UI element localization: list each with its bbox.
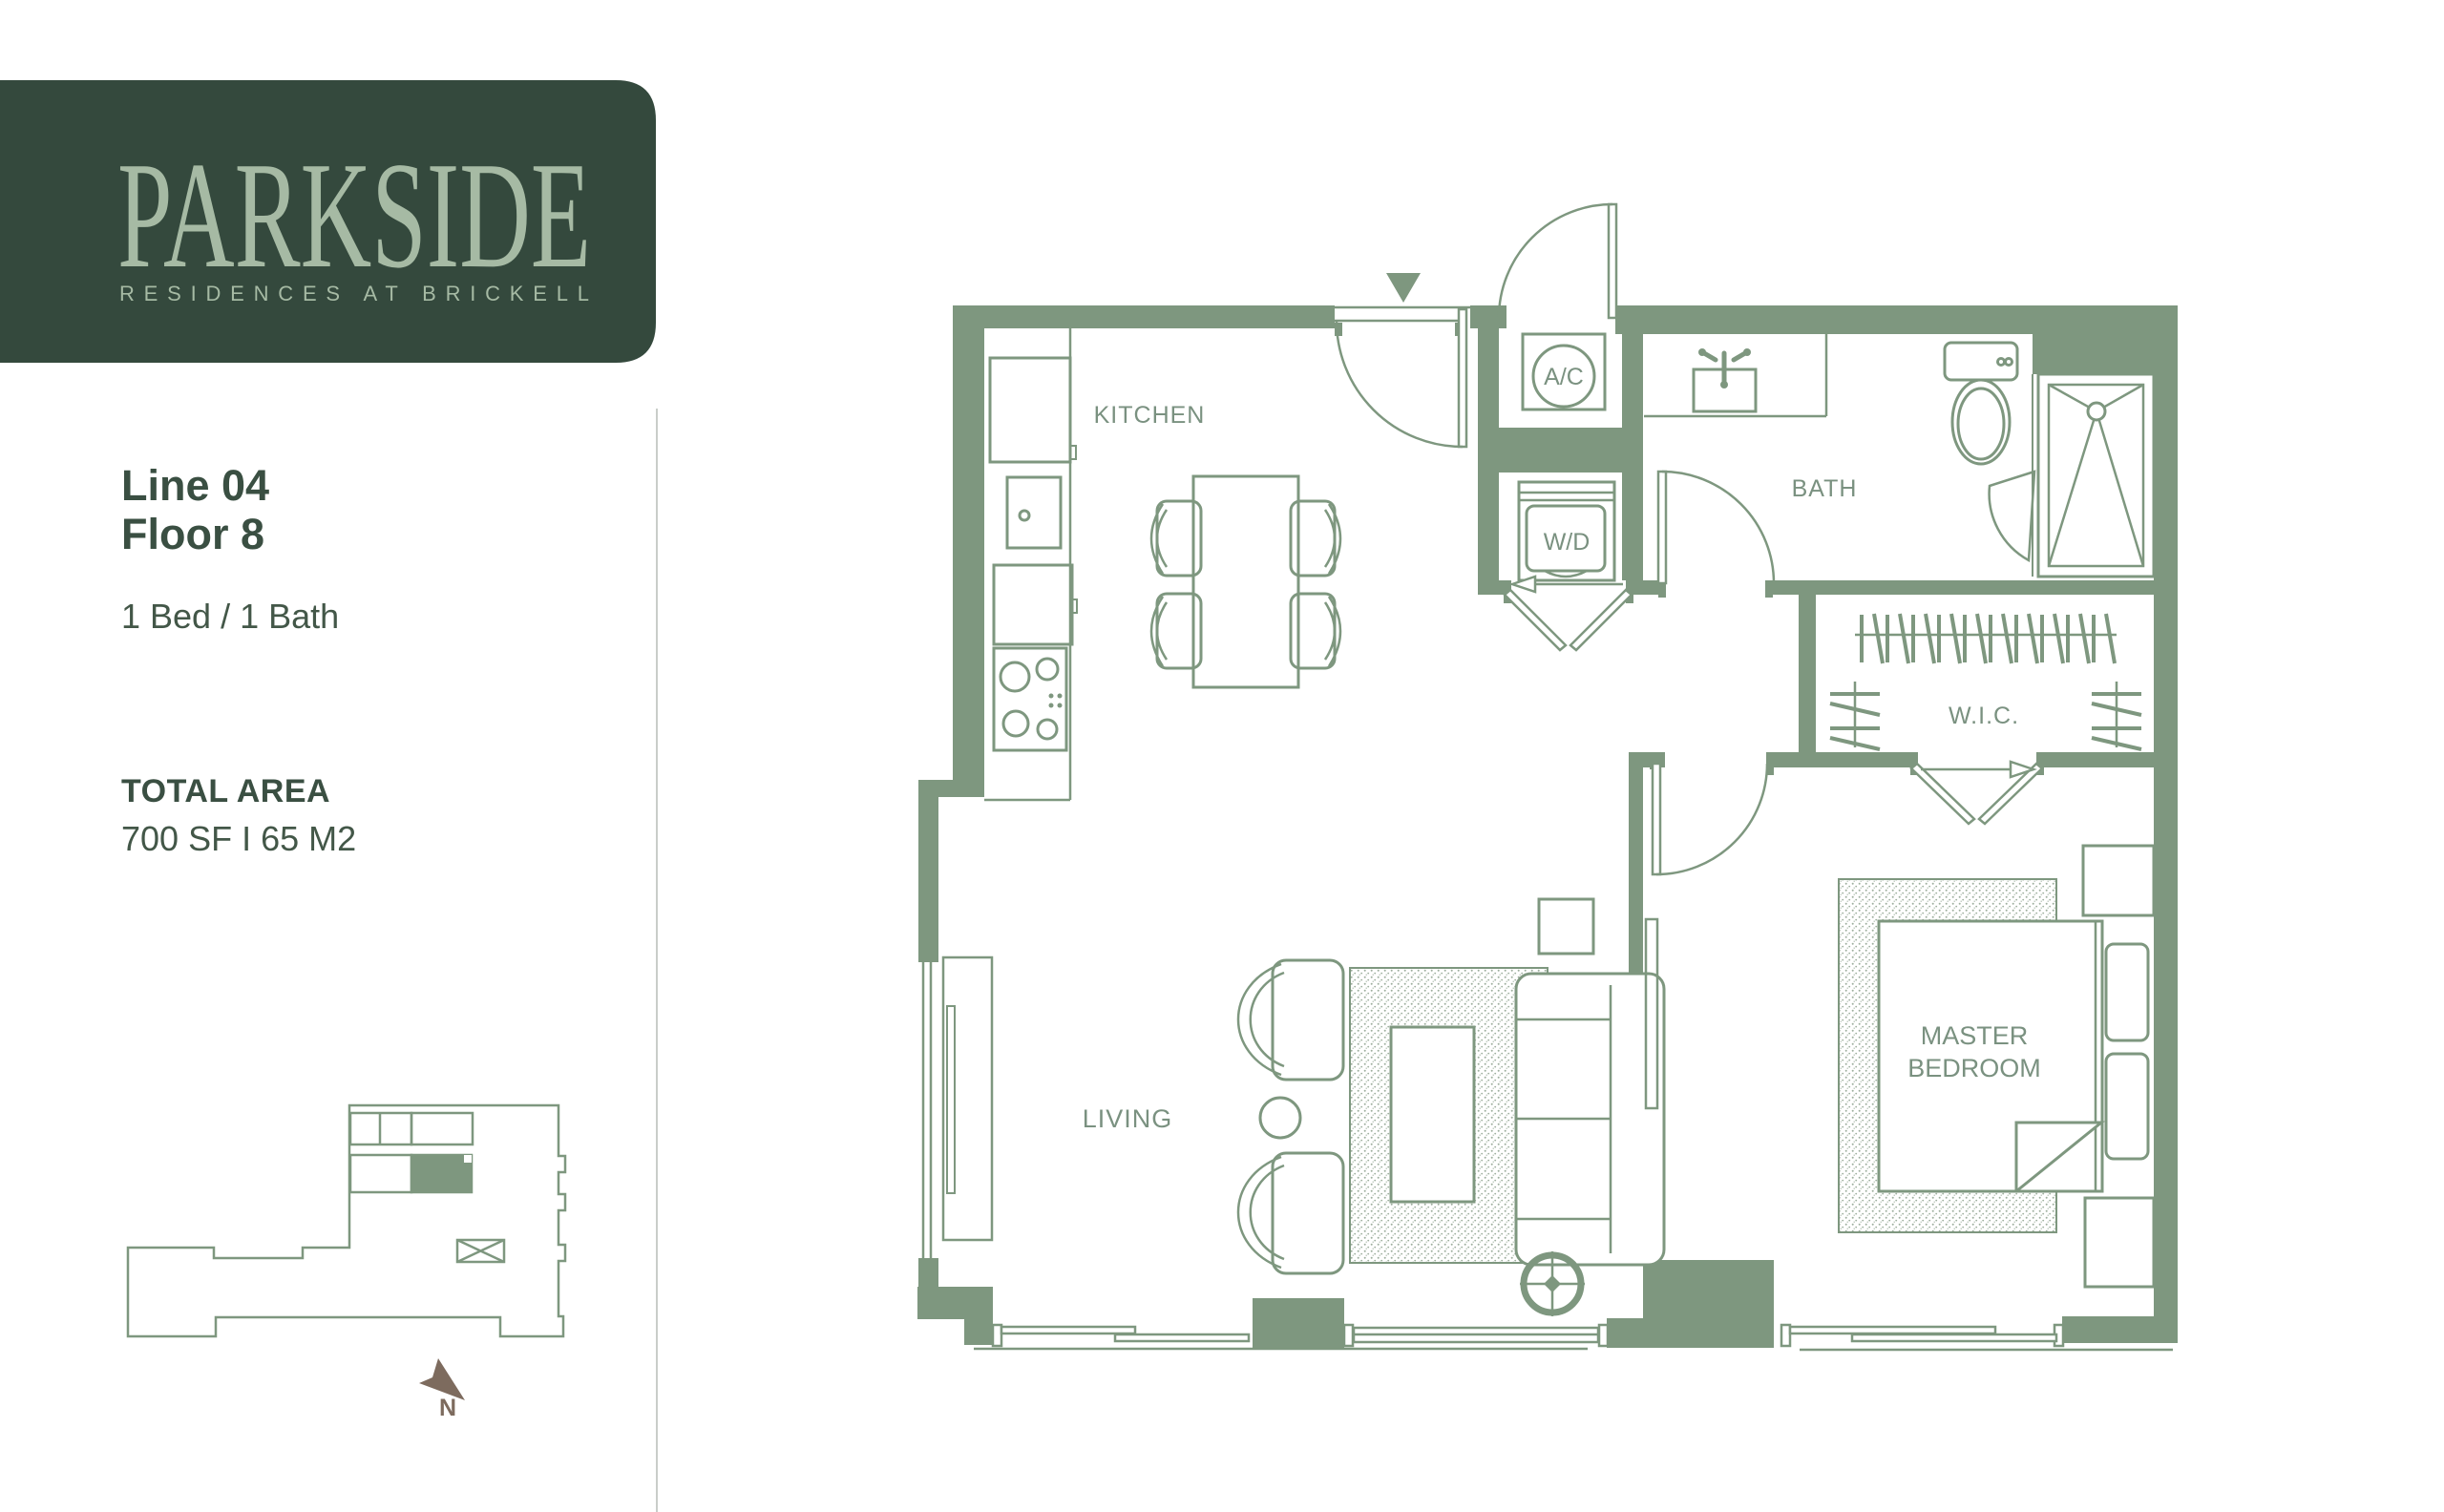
svg-text:1 Bed / 1 Bath: 1 Bed / 1 Bath [121,597,339,636]
svg-text:Line 04: Line 04 [121,461,269,510]
svg-text:N: N [439,1395,456,1421]
svg-text:KITCHEN: KITCHEN [1094,402,1206,429]
svg-text:W/D: W/D [1544,529,1591,556]
svg-text:A/C: A/C [1544,364,1584,390]
svg-text:W.I.C.: W.I.C. [1949,703,2019,729]
svg-text:BATH: BATH [1792,475,1858,502]
svg-text:LIVING: LIVING [1083,1104,1173,1133]
svg-text:PARKSIDE: PARKSIDE [117,130,591,300]
svg-text:BEDROOM: BEDROOM [1907,1054,2041,1082]
svg-text:TOTAL AREA: TOTAL AREA [121,773,330,809]
svg-text:MASTER: MASTER [1921,1021,2029,1050]
svg-text:Floor 8: Floor 8 [121,510,264,558]
svg-text:700 SF I 65 M2: 700 SF I 65 M2 [121,819,356,858]
